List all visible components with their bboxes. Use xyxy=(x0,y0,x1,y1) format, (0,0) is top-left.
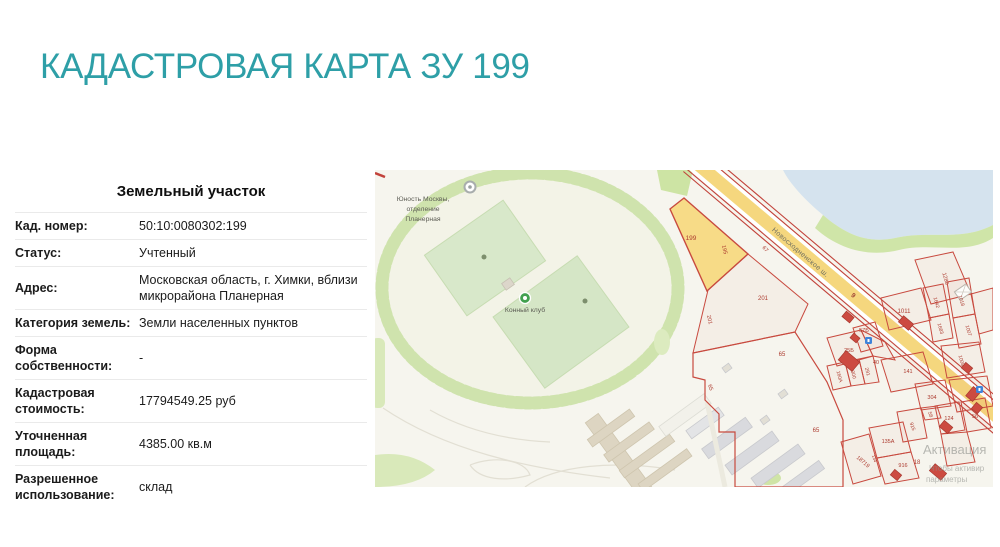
card-row-ownership: Форма собственности: - xyxy=(15,336,367,379)
transit-stop-icon[interactable] xyxy=(976,386,983,393)
card-row-address: Адрес: Московская область, г. Химки, вбл… xyxy=(15,266,367,309)
row-label: Кадастровая стоимость: xyxy=(15,385,139,417)
card-row-usage: Разрешенное использование: склад xyxy=(15,465,367,508)
parcel-number-18: 18 xyxy=(914,460,921,466)
parcel-number-65: 65 xyxy=(779,352,786,358)
parcel-number-25b: 25Б xyxy=(844,348,854,354)
row-value: 50:10:0080302:199 xyxy=(139,218,367,234)
horse-club-icon-dot xyxy=(523,296,527,300)
parcel-number-916: 916 xyxy=(898,463,907,469)
row-value: Земли населенных пунктов xyxy=(139,315,367,331)
sports-school-label: отделение xyxy=(406,206,439,213)
row-value: 4385.00 кв.м xyxy=(139,436,367,452)
parcel-number-57b: 57Б xyxy=(859,328,869,334)
field-marker-icon xyxy=(482,255,487,260)
parcel-number-65: 65 xyxy=(813,428,820,434)
card-heading: Земельный участок xyxy=(15,183,367,200)
sports-school-label: Юность Москвы, xyxy=(397,196,450,203)
card-row-area: Уточненная площадь: 4385.00 кв.м xyxy=(15,422,367,465)
activation-watermark-line2: Чтобы активир xyxy=(929,464,985,473)
sports-school-label: Планерная xyxy=(405,216,440,223)
row-label: Кад. номер: xyxy=(15,218,139,234)
row-value: - xyxy=(139,350,367,366)
row-value: склад xyxy=(139,479,367,495)
card-row-cad-number: Кад. номер: 50:10:0080302:199 xyxy=(15,212,367,239)
row-label: Категория земель: xyxy=(15,315,139,331)
card-row-category: Категория земель: Земли населенных пункт… xyxy=(15,309,367,336)
card-row-cost: Кадастровая стоимость: 17794549.25 руб xyxy=(15,379,367,422)
card-row-status: Статус: Учтенный xyxy=(15,239,367,266)
parcel-number-141: 141 xyxy=(903,369,912,375)
parcel-number-56: 56 xyxy=(972,414,978,420)
horse-club-label: Конный клуб xyxy=(505,306,545,314)
row-label: Статус: xyxy=(15,245,139,261)
parcel-number-304: 304 xyxy=(927,395,936,401)
cadastral-map[interactable]: Юность Москвы, отделение Планерная Конны… xyxy=(375,170,993,487)
row-value: Московская область, г. Химки, вблизи мик… xyxy=(139,272,367,304)
activation-watermark-line3: параметры xyxy=(926,475,967,484)
row-label: Разрешенное использование: xyxy=(15,471,139,503)
field-marker-icon xyxy=(583,299,588,304)
activation-watermark-line1: Активация xyxy=(923,442,986,457)
row-value: 17794549.25 руб xyxy=(139,393,367,409)
cadastral-page: КАДАСТРОВАЯ КАРТА ЗУ 199 Земельный участ… xyxy=(0,0,1000,547)
sports-school-icon-dot xyxy=(468,185,472,189)
transit-stop-icon[interactable] xyxy=(865,337,872,344)
row-label: Уточненная площадь: xyxy=(15,428,139,460)
row-label: Форма собственности: xyxy=(15,342,139,374)
row-value: Учтенный xyxy=(139,245,367,261)
parcel-number-135a: 135А xyxy=(882,439,895,445)
parcel-number-40: 40 xyxy=(873,360,879,366)
parcel-number-199: 199 xyxy=(686,235,697,242)
parcel-number-124: 124 xyxy=(944,416,953,422)
parcel-number-201: 201 xyxy=(758,296,769,302)
row-label: Адрес: xyxy=(15,280,139,296)
parcel-number-1011: 1011 xyxy=(898,309,912,315)
page-title: КАДАСТРОВАЯ КАРТА ЗУ 199 xyxy=(40,47,530,87)
parcel-info-card: Земельный участок Кад. номер: 50:10:0080… xyxy=(15,183,367,508)
